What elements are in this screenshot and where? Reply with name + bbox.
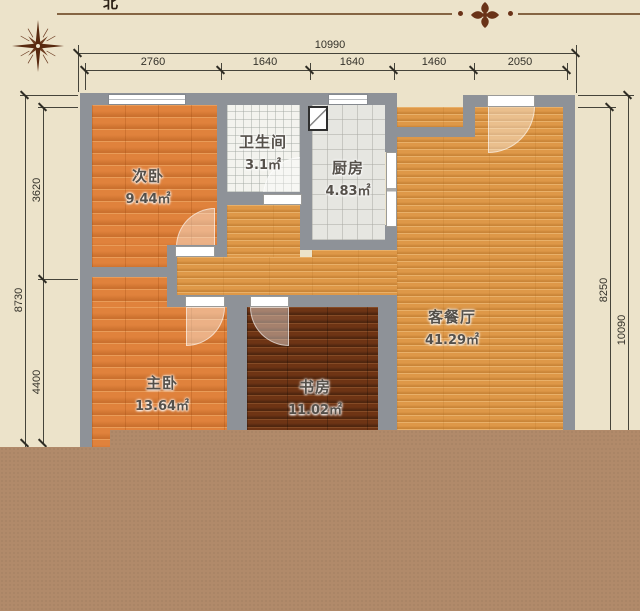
kitchen-sliding-door [386, 152, 397, 227]
header-dot-left [458, 11, 463, 16]
floor-plan-canvas: 北 [0, 0, 640, 611]
wall-master-study [227, 307, 247, 433]
dim-label-left-seg: 4400 [31, 370, 43, 394]
room-area: 9.44㎡ [125, 188, 170, 207]
bedroom2-window [108, 94, 186, 105]
dim-line-top-total [78, 53, 576, 54]
room-label-kitchen: 厨房 4.83㎡ [325, 157, 370, 199]
dim-label-top-seg: 1460 [422, 56, 446, 68]
dim-label-top-seg: 1640 [253, 56, 277, 68]
room-area: 13.64㎡ [135, 395, 189, 414]
kitchen-appliance-icon [308, 106, 328, 131]
room-area: 3.1㎡ [239, 154, 287, 173]
wall-bedroom2-bathroom [217, 105, 227, 257]
compass-rose-icon [9, 17, 67, 75]
kitchen-passage-floor [312, 250, 397, 295]
room-name: 厨房 [325, 157, 370, 178]
dim-line-left-total [25, 95, 26, 447]
bathroom-vestibule-floor [227, 205, 300, 257]
bottom-band-step [110, 430, 640, 447]
bathroom-door [263, 194, 302, 205]
dim-line-right-inner [610, 107, 611, 432]
entry-door [487, 95, 535, 107]
room-name: 卫生间 [239, 131, 287, 152]
wall-bedroom2-bottom [80, 267, 177, 277]
study-door [250, 296, 289, 307]
room-name: 主卧 [135, 372, 189, 393]
room-name: 客餐厅 [425, 306, 479, 327]
room-area: 4.83㎡ [325, 180, 370, 199]
wall-kitchen-right-upper [385, 105, 397, 152]
room-label-study: 书房 11.02㎡ [288, 376, 342, 418]
header-rule-right [518, 13, 640, 15]
bottom-band [0, 447, 640, 611]
dim-extension [85, 63, 86, 90]
dim-label-top-seg: 1640 [340, 56, 364, 68]
room-name: 书房 [288, 376, 342, 397]
room-label-master-bedroom: 主卧 13.64㎡ [135, 372, 189, 414]
dim-line-right-outer [628, 95, 629, 432]
fleur-ornament-icon [468, 0, 502, 30]
dim-label-top-seg: 2050 [508, 56, 532, 68]
dim-label-top-total: 10990 [315, 39, 346, 51]
dim-line-left-segments [43, 107, 44, 445]
room-label-living-dining: 客餐厅 41.29㎡ [425, 306, 479, 348]
bedroom2-door [175, 246, 215, 257]
header-rule-left [57, 13, 452, 15]
dim-label-right-outer: 10090 [616, 315, 628, 346]
kitchen-window [328, 94, 368, 105]
north-label: 北 [103, 0, 118, 13]
room-label-bathroom: 卫生间 3.1㎡ [239, 131, 287, 173]
wall-outer-right [563, 107, 575, 433]
dim-line-top-segments [85, 70, 567, 71]
dim-label-left-seg: 3620 [31, 178, 43, 202]
master-bedroom-floor-upper [92, 277, 167, 307]
dim-label-left-total: 8730 [13, 288, 25, 312]
room-label-bedroom2: 次卧 9.44㎡ [125, 165, 170, 207]
wall-study-right [378, 295, 397, 433]
room-area: 11.02㎡ [288, 399, 342, 418]
dim-extension [20, 95, 78, 96]
bedroom2-floor-lower [92, 245, 167, 267]
master-bedroom-door [185, 296, 225, 307]
room-area: 41.29㎡ [425, 329, 479, 348]
wall-kitchen-bottom [300, 240, 397, 250]
room-name: 次卧 [125, 165, 170, 186]
living-dining-floor [397, 107, 563, 433]
header-dot-right [508, 11, 513, 16]
dim-label-top-seg: 2760 [141, 56, 165, 68]
dim-label-right-inner: 8250 [598, 278, 610, 302]
